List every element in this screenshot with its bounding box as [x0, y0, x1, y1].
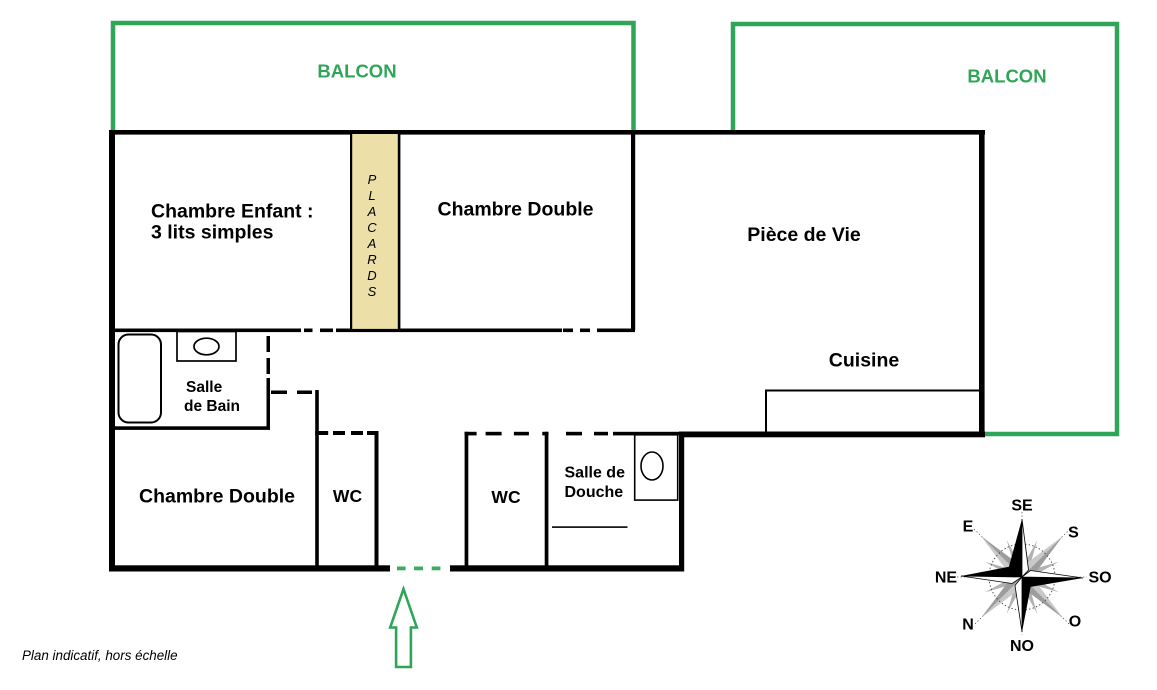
svg-text:WC: WC [491, 487, 521, 507]
svg-text:SE: SE [1011, 498, 1033, 515]
svg-text:SO: SO [1088, 570, 1111, 587]
svg-text:3 lits simples: 3 lits simples [151, 222, 274, 244]
svg-text:NE: NE [935, 570, 958, 587]
svg-text:A: A [367, 236, 377, 251]
svg-text:de Bain: de Bain [184, 398, 240, 415]
svg-text:Cuisine: Cuisine [829, 350, 900, 372]
svg-text:BALCON: BALCON [317, 61, 396, 82]
svg-text:A: A [367, 204, 377, 219]
svg-text:Salle de: Salle de [565, 465, 626, 482]
svg-text:Douche: Douche [565, 484, 624, 501]
svg-text:BALCON: BALCON [967, 66, 1046, 87]
svg-text:Pièce de Vie: Pièce de Vie [747, 224, 861, 246]
svg-text:NO: NO [1010, 638, 1034, 655]
svg-text:E: E [963, 519, 974, 536]
svg-text:O: O [1069, 614, 1081, 631]
svg-text:P: P [368, 172, 377, 187]
svg-text:R: R [367, 252, 376, 267]
svg-text:Chambre Double: Chambre Double [139, 486, 295, 508]
svg-text:N: N [962, 617, 974, 634]
svg-text:Plan indicatif, hors échelle: Plan indicatif, hors échelle [22, 648, 178, 663]
svg-text:C: C [367, 220, 377, 235]
svg-text:Chambre Double: Chambre Double [437, 199, 593, 221]
svg-text:S: S [1068, 525, 1079, 542]
svg-text:D: D [367, 268, 376, 283]
svg-text:S: S [368, 284, 377, 299]
svg-text:L: L [368, 188, 375, 203]
svg-text:Chambre Enfant :: Chambre Enfant : [151, 201, 314, 223]
svg-text:Salle: Salle [186, 379, 223, 396]
svg-text:WC: WC [333, 486, 363, 506]
